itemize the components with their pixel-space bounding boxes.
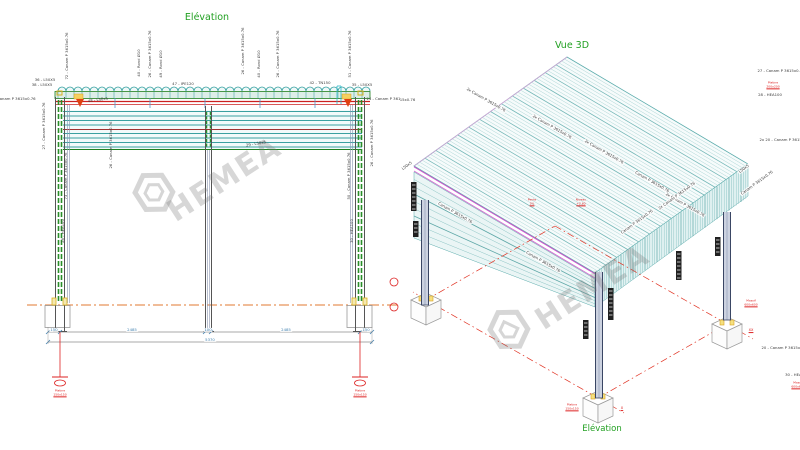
vue3d-title: Vue 3D xyxy=(512,40,632,51)
note-label: 150x150 xyxy=(53,393,66,396)
part-label: 28 - HEA100 xyxy=(61,219,65,243)
note-label: XX xyxy=(749,329,754,333)
part-label: 49 - Rond Ø10 xyxy=(159,50,163,77)
note-label: +2.60 xyxy=(576,202,585,205)
note-label: X xyxy=(621,407,623,411)
part-label: 26 - Canam P 3615x0.76 xyxy=(109,121,113,168)
part-label: Canam P 3615x0.76 xyxy=(400,98,415,102)
part-label: 26 - Canam P 3615x0.76 xyxy=(241,27,245,74)
vue3d-view: HEMEA Vue 3D Elévation 2x Canam P 3615x0… xyxy=(400,0,800,450)
part-label: 72 - Canam P 3615x0.76 xyxy=(65,32,69,79)
part-label: 30 - HEA100 xyxy=(785,373,800,377)
part-label: 38 - L50X5 xyxy=(32,83,53,87)
part-label: 40 - Rond Ø10 xyxy=(257,50,261,77)
part-label: 73 - Canam P 3615x0.76 xyxy=(64,152,68,199)
note-label: 150x150 xyxy=(353,393,366,396)
part-label: 28 - HEA100 xyxy=(758,93,782,97)
part-label: 42 - TN150 xyxy=(309,81,330,85)
note-label: 200x200 xyxy=(766,85,779,88)
note-label: 600x600 xyxy=(791,385,800,388)
part-label: 24 - Canam P 3615x0.76 xyxy=(366,97,400,101)
part-label: 04 - Canam P 3615x0.76 xyxy=(0,97,36,101)
dimension-label: 5370 xyxy=(204,338,216,342)
part-label: 50 - Canam P 3615x0.76 xyxy=(347,152,351,199)
vue3d-footer-title: Elévation xyxy=(542,424,662,434)
part-label: 40 - Rond Ø10 xyxy=(137,49,141,76)
part-label: 26 - Canam P 3615x0.76 xyxy=(276,30,280,77)
part-label: 30 - HEA100 xyxy=(350,219,354,243)
part-label: 26 - Canam P 3615x0.76 xyxy=(370,119,374,166)
part-label: 51 - Canam P 3615x0.76 xyxy=(348,30,352,77)
dimension-label: 2485 xyxy=(126,328,138,332)
drawing-canvas: HEMEA Elévation 36 - L50X538 - L50X572 -… xyxy=(0,0,800,450)
note-label: 3% xyxy=(530,202,535,205)
part-label: 35 - L50X5 xyxy=(352,83,373,87)
part-label: 27 - Canam P 3615x0.76 xyxy=(757,69,800,73)
part-label: 47 - IPE120 xyxy=(172,82,194,86)
part-label: 26 - Canam P 3615x0.76 xyxy=(148,30,152,77)
note-label: 600x600 xyxy=(744,303,757,306)
dimension-label: 150 xyxy=(49,328,58,332)
elevation-title: Elévation xyxy=(147,12,267,23)
part-label: 2x 20 - Canam P 3615x0.76 xyxy=(760,138,800,142)
note-label: 150x150 xyxy=(565,407,578,410)
part-label: 20 - Canam P 3615x0.76 xyxy=(761,346,800,350)
dimension-label: 100 xyxy=(203,328,212,332)
vue3d-drawing xyxy=(400,0,800,450)
part-label: 27 - Canam P 3615x0.76 xyxy=(42,102,46,149)
elevation-view: HEMEA Elévation 36 - L50X538 - L50X572 -… xyxy=(0,0,400,450)
dimension-label: 2485 xyxy=(280,328,292,332)
dimension-label: 150 xyxy=(361,328,370,332)
